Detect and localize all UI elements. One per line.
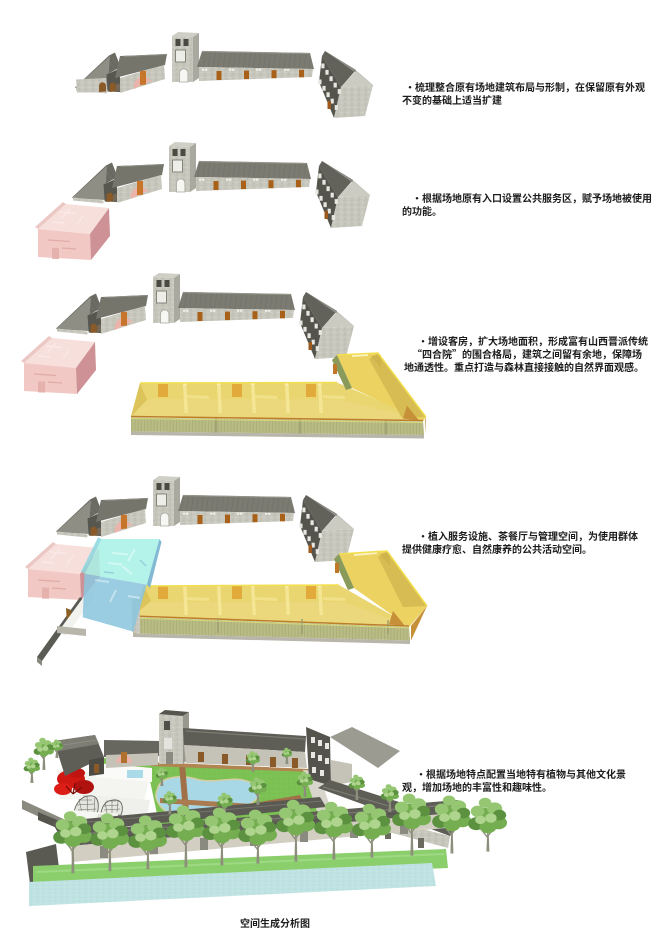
svg-text:不变的基础上适当扩建: 不变的基础上适当扩建 [402,92,502,107]
svg-text:的功能。: 的功能。 [402,203,442,218]
svg-text:空间生成分析图: 空间生成分析图 [240,915,310,930]
svg-text:观，增加场地的丰富性和趣味性。: 观，增加场地的丰富性和趣味性。 [402,779,552,794]
svg-text:提供健康疗愈、自然康养的公共活动空间。: 提供健康疗愈、自然康养的公共活动空间。 [402,541,592,556]
svg-text:地通透性。重点打造与森林直接接触的自然界面观感。: 地通透性。重点打造与森林直接接触的自然界面观感。 [404,359,644,374]
svg-text:・根据场地原有入口设置公共服务区，赋予场地被使用: ・根据场地原有入口设置公共服务区，赋予场地被使用 [412,190,652,205]
